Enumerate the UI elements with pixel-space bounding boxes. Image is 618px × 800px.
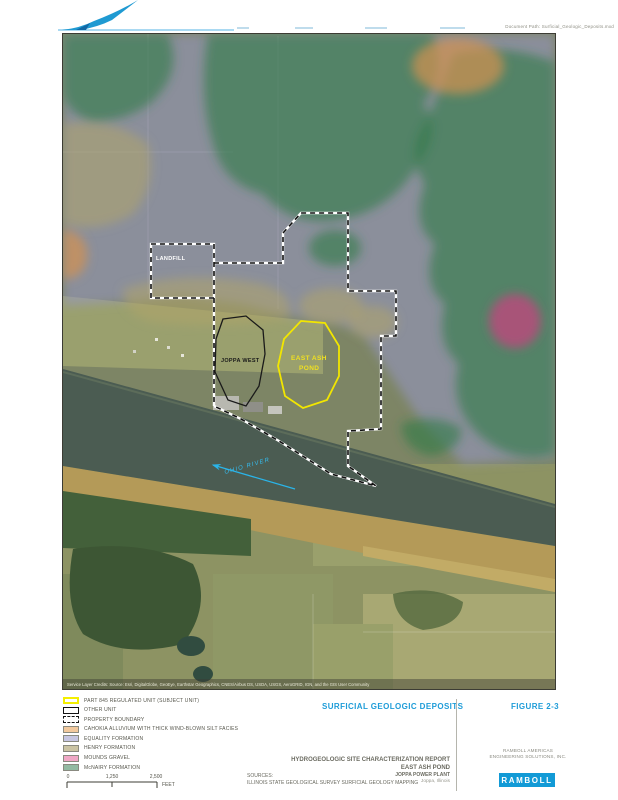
swoosh-hook [76,23,90,30]
legend-label: PART 845 REGULATED UNIT (SUBJECT UNIT) [84,698,199,704]
legend-swatch-mounds [63,755,79,762]
surficial-geology-map: LANDFILL JOPPA WEST EAST ASH POND OHIO R… [63,34,555,689]
ramboll-logo: RAMBOLL [499,773,555,787]
landfill-label: LANDFILL [156,256,186,262]
legend-label: McNAIRY FORMATION [84,765,140,771]
legend-label: EQUALITY FORMATION [84,736,143,742]
east-ash-pond-label-line2: POND [299,365,319,372]
joppa-west-label: JOPPA WEST [221,358,260,364]
east-ash-pond-label-line1: EAST ASH [291,355,327,362]
map-canvas: LANDFILL JOPPA WEST EAST ASH POND OHIO R… [62,33,556,690]
legend-label: PROPERTY BOUNDARY [84,717,144,723]
credits-text: Service Layer Credits: Source: Esri, Dig… [67,682,370,687]
report-subtitle-unit: EAST ASH POND [240,765,450,773]
swoosh-shape [62,0,138,30]
report-title: HYDROGEOLOGIC SITE CHARACTERIZATION REPO… [240,757,450,765]
scale-tick-2: 2,500 [150,774,163,780]
legend-swatch-other-unit [63,707,79,714]
scale-unit-label: FEET [162,782,175,788]
signature-swoosh-icon [50,0,250,34]
legend-swatch-henry [63,745,79,752]
scale-tick-1: 1,250 [106,774,119,780]
scale-bar: 0 1,250 2,500 FEET [66,774,196,791]
document-path-text: Document Path: Surficial_Geologic_Deposi… [438,24,614,29]
legend-swatch-property-boundary [63,716,79,723]
legend-item: HENRY FORMATION [63,745,313,752]
report-location: Joppa, Illinois [240,779,450,786]
legend-label: OTHER UNIT [84,707,117,713]
legend-swatch-equality [63,735,79,742]
ramboll-logo-text: RAMBOLL [501,776,552,785]
legend-item: OTHER UNIT [63,707,313,714]
legend-item: PART 845 REGULATED UNIT (SUBJECT UNIT) [63,697,313,704]
scale-bar-line [66,781,158,789]
legend-label: HENRY FORMATION [84,745,135,751]
service-layer-credits: Service Layer Credits: Source: Esri, Dig… [63,679,555,689]
legend-swatch-mcnairy [63,764,79,771]
legend-label: MOUNDS GRAVEL [84,755,130,761]
mounds-gravel-area [489,294,541,348]
company-name-block: RAMBOLL AMERICAS ENGINEERING SOLUTIONS, … [468,748,588,760]
legend-item: CAHOKIA ALLUVIUM WITH THICK WIND-BLOWN S… [63,726,313,733]
company-line2: ENGINEERING SOLUTIONS, INC. [468,754,588,760]
map-title: SURFICIAL GEOLOGIC DEPOSITS [322,702,462,711]
report-title-block: HYDROGEOLOGIC SITE CHARACTERIZATION REPO… [240,757,450,785]
legend-item: EQUALITY FORMATION [63,735,313,742]
legend-swatch-regulated-unit [63,697,79,704]
legend-swatch-cahokia [63,726,79,733]
figure-number: FIGURE 2-3 [511,702,559,711]
legend-label: CAHOKIA ALLUVIUM WITH THICK WIND-BLOWN S… [84,726,238,732]
legend-item: PROPERTY BOUNDARY [63,716,313,723]
titleblock-divider [456,699,457,791]
scale-tick-0: 0 [67,774,70,780]
